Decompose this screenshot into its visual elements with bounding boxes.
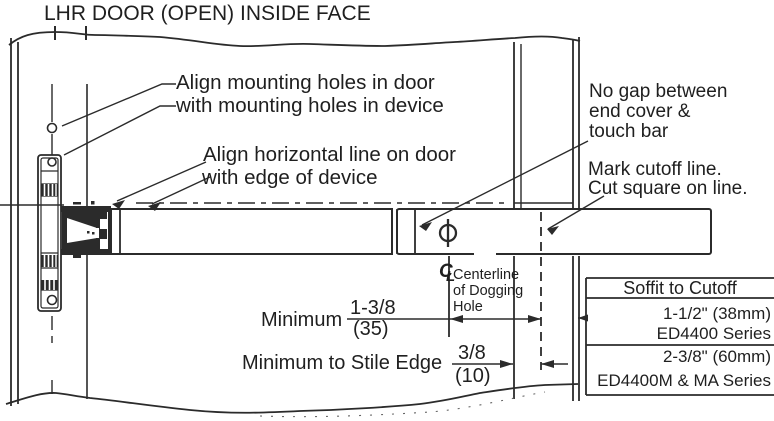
svg-text:Centerline: Centerline <box>453 267 519 283</box>
svg-text:touch bar: touch bar <box>589 121 669 142</box>
svg-text:Align mounting holes in door: Align mounting holes in door <box>176 71 435 94</box>
svg-text:2-3/8" (60mm): 2-3/8" (60mm) <box>663 347 771 366</box>
svg-text:Mark cutoff line.: Mark cutoff line. <box>588 159 722 180</box>
svg-text:ED4400 Series: ED4400 Series <box>657 324 771 343</box>
svg-text:(35): (35) <box>353 318 389 340</box>
svg-text:No gap between: No gap between <box>589 81 727 102</box>
svg-text:of Dogging: of Dogging <box>453 283 523 299</box>
svg-text:Align horizontal line on door: Align horizontal line on door <box>203 143 456 166</box>
svg-text:LHR DOOR (OPEN) INSIDE FACE: LHR DOOR (OPEN) INSIDE FACE <box>44 2 371 25</box>
svg-text:end cover &: end cover & <box>589 101 691 122</box>
svg-text:Soffit to Cutoff: Soffit to Cutoff <box>623 278 737 298</box>
svg-text:with edge of device: with edge of device <box>201 166 378 189</box>
svg-text:Cut square on line.: Cut square on line. <box>588 178 748 199</box>
svg-text:1-1/2" (38mm): 1-1/2" (38mm) <box>663 304 771 323</box>
svg-text:(10): (10) <box>455 365 491 387</box>
svg-text:1-3/8: 1-3/8 <box>350 297 396 319</box>
svg-text:with mounting holes in device: with mounting holes in device <box>175 94 444 117</box>
svg-text:3/8: 3/8 <box>458 342 486 364</box>
svg-text:Hole: Hole <box>453 299 483 315</box>
svg-text:ED4400M & MA Series: ED4400M & MA Series <box>597 371 771 390</box>
svg-text:Minimum: Minimum <box>261 309 342 331</box>
svg-text:Minimum to Stile Edge: Minimum to Stile Edge <box>242 352 442 374</box>
